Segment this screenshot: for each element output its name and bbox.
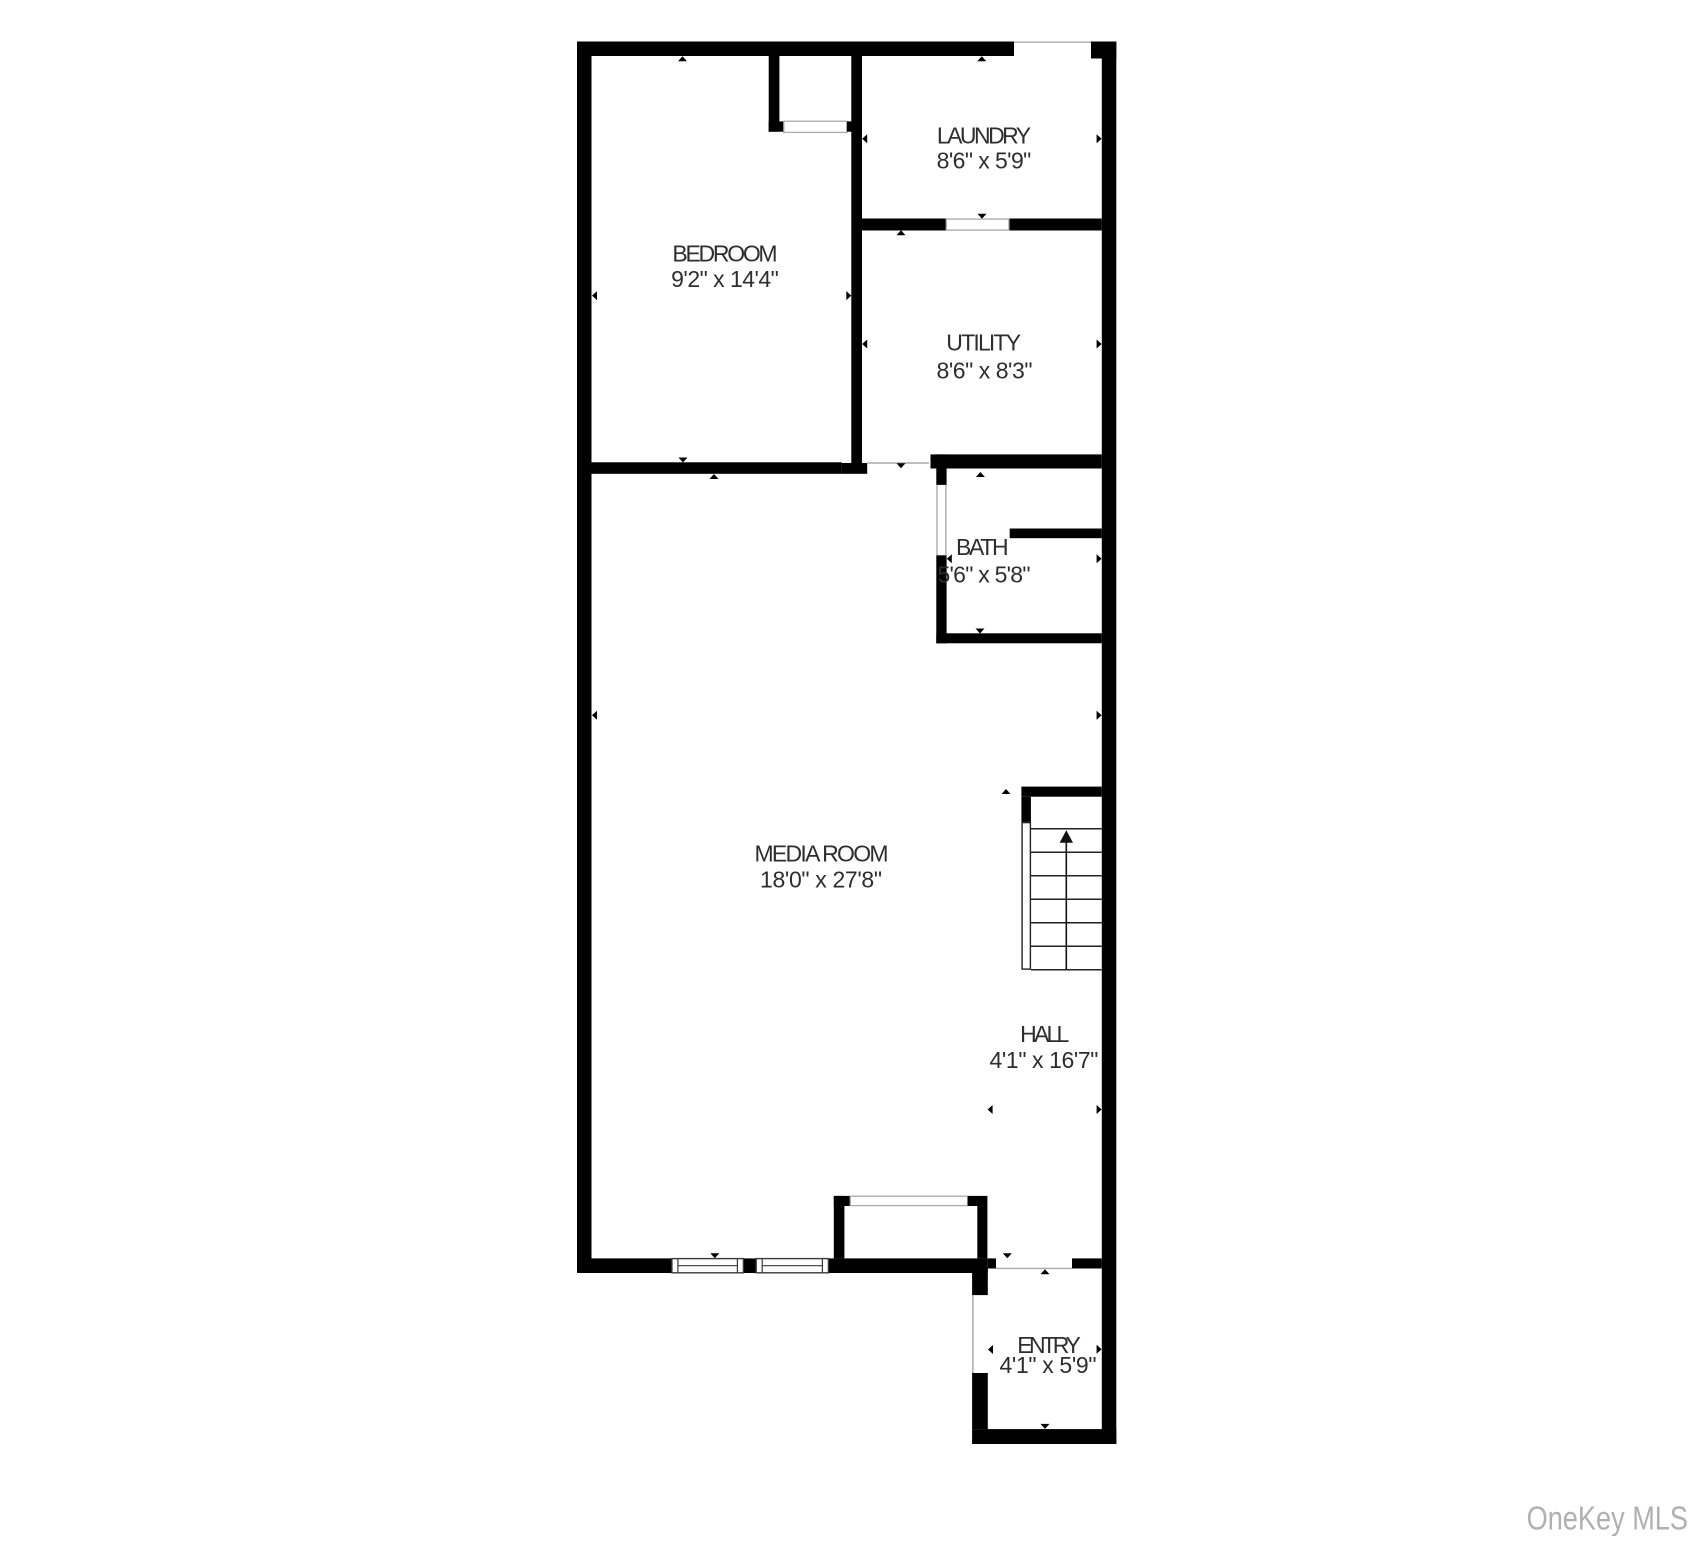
svg-text:BATH: BATH (956, 534, 1009, 560)
svg-text:BEDROOM: BEDROOM (672, 241, 777, 267)
svg-text:5'6" x 5'8": 5'6" x 5'8" (938, 561, 1031, 587)
svg-text:9'2" x 14'4": 9'2" x 14'4" (671, 266, 779, 292)
svg-text:4'1" x 5'9": 4'1" x 5'9" (1000, 1352, 1097, 1378)
svg-text:LAUNDRY: LAUNDRY (937, 122, 1031, 148)
svg-text:8'6" x 5'9": 8'6" x 5'9" (937, 148, 1032, 174)
svg-text:MEDIA ROOM: MEDIA ROOM (754, 840, 888, 866)
svg-text:OneKey MLS: OneKey MLS (1527, 1500, 1688, 1536)
svg-text:HALL: HALL (1020, 1021, 1069, 1047)
svg-text:UTILITY: UTILITY (946, 330, 1021, 356)
svg-text:4'1" x 16'7": 4'1" x 16'7" (990, 1047, 1099, 1073)
svg-text:8'6" x 8'3": 8'6" x 8'3" (937, 358, 1033, 384)
svg-text:18'0" x 27'8": 18'0" x 27'8" (760, 866, 882, 892)
